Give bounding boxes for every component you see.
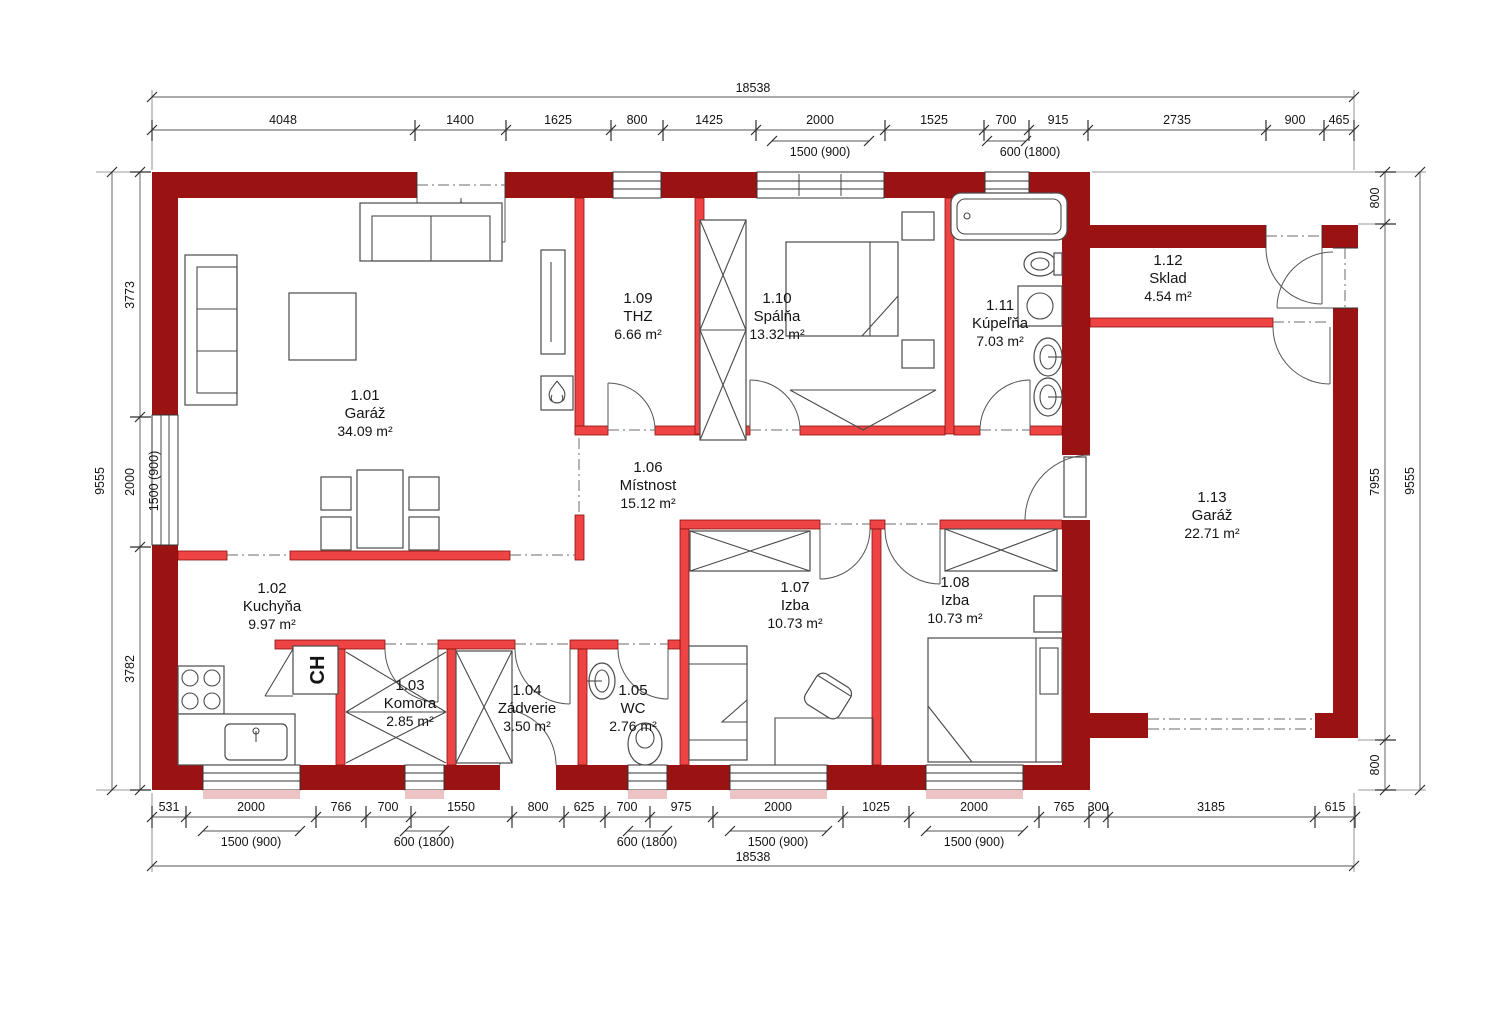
nightstand-1 [902, 212, 934, 240]
wardrobe-spalna [700, 220, 746, 440]
svg-text:6.66 m²: 6.66 m² [614, 326, 662, 342]
svg-text:22.71 m²: 22.71 m² [1184, 525, 1240, 541]
svg-text:1.04: 1.04 [512, 682, 541, 699]
bed-spalna [786, 242, 898, 336]
svg-text:2000: 2000 [764, 800, 792, 814]
svg-text:1.13: 1.13 [1197, 489, 1226, 506]
svg-text:WC: WC [621, 700, 646, 717]
svg-text:700: 700 [378, 800, 399, 814]
floor-plan-drawing: 1.01Garáž34.09 m² 1.02Kuchyňa9.97 m² 1.0… [0, 0, 1501, 1013]
svg-text:600 (1800): 600 (1800) [394, 835, 454, 849]
svg-text:1.09: 1.09 [623, 290, 652, 307]
svg-text:15.12 m²: 15.12 m² [620, 495, 676, 511]
svg-text:10.73 m²: 10.73 m² [927, 610, 983, 626]
svg-text:1550: 1550 [447, 800, 475, 814]
window-izba-107 [730, 765, 827, 790]
room-label-1-13: 1.13Garáž22.71 m² [1184, 489, 1240, 541]
svg-text:1625: 1625 [544, 113, 572, 127]
room-label-1-01: 1.01Garáž34.09 m² [337, 387, 393, 439]
dimension-right: 800 7955 800 9555 [1092, 167, 1426, 795]
svg-text:THZ: THZ [623, 308, 652, 325]
dim-right-total: 9555 [1403, 467, 1417, 495]
svg-text:2.85 m²: 2.85 m² [386, 713, 434, 729]
svg-text:765: 765 [1054, 800, 1075, 814]
floor-plan-canvas: 1.01Garáž34.09 m² 1.02Kuchyňa9.97 m² 1.0… [0, 0, 1501, 1013]
door-spalna [750, 380, 800, 430]
door-sklad-garage [1273, 327, 1330, 384]
furniture-izba-108 [928, 529, 1062, 762]
svg-text:2000: 2000 [960, 800, 988, 814]
svg-text:1.01: 1.01 [350, 387, 379, 404]
office-chair [802, 670, 855, 722]
svg-text:915: 915 [1048, 113, 1069, 127]
coffee-table [289, 293, 356, 360]
svg-text:1.02: 1.02 [257, 580, 286, 597]
room-label-1-05: 1.05WC2.76 m² [609, 682, 657, 734]
room-label-1-08: 1.08Izba10.73 m² [927, 574, 983, 626]
wardrobe-107 [690, 531, 810, 571]
svg-text:2000: 2000 [237, 800, 265, 814]
svg-text:2000: 2000 [123, 468, 137, 496]
svg-text:Garáž: Garáž [1192, 507, 1233, 524]
desk-107 [775, 718, 873, 765]
fridge-label: CH [307, 656, 329, 685]
svg-text:3773: 3773 [123, 281, 137, 309]
dim-top-total: 18538 [736, 81, 771, 95]
svg-text:1500 (900): 1500 (900) [147, 451, 161, 511]
room-label-1-12: 1.12Sklad4.54 m² [1144, 252, 1192, 304]
svg-text:700: 700 [996, 113, 1017, 127]
fireplace-icon [541, 376, 573, 410]
svg-text:Místnost: Místnost [620, 477, 678, 494]
dim-bottom-total: 18538 [736, 850, 771, 864]
bed-107 [689, 646, 747, 760]
svg-text:1.11: 1.11 [986, 297, 1014, 314]
svg-text:2.76 m²: 2.76 m² [609, 718, 657, 734]
svg-text:465: 465 [1329, 113, 1350, 127]
svg-text:Komora: Komora [384, 695, 437, 712]
door-thz [608, 383, 655, 430]
svg-text:1.03: 1.03 [395, 677, 424, 694]
svg-text:1.08: 1.08 [940, 574, 969, 591]
nightstand-2 [902, 340, 934, 368]
svg-text:800: 800 [1368, 755, 1382, 776]
svg-text:13.32 m²: 13.32 m² [749, 326, 805, 342]
svg-text:800: 800 [627, 113, 648, 127]
svg-text:Sklad: Sklad [1149, 270, 1187, 287]
sink-wc [587, 663, 615, 699]
svg-text:800: 800 [1368, 188, 1382, 209]
window-thz [613, 172, 661, 198]
window-spalna [757, 172, 884, 198]
bed-108 [928, 638, 1062, 762]
furniture-izba-107 [689, 531, 873, 765]
svg-text:3185: 3185 [1197, 800, 1225, 814]
dim-left-total: 9555 [93, 467, 107, 495]
door-leaf-garage-passage [1064, 457, 1086, 517]
svg-text:1500 (900): 1500 (900) [221, 835, 281, 849]
svg-text:1500 (900): 1500 (900) [944, 835, 1004, 849]
svg-text:Izba: Izba [781, 597, 810, 614]
room-label-1-02: 1.02Kuchyňa9.97 m² [243, 580, 302, 632]
svg-text:7.03 m²: 7.03 m² [976, 333, 1024, 349]
svg-text:3.50 m²: 3.50 m² [503, 718, 551, 734]
svg-text:1525: 1525 [920, 113, 948, 127]
dimension-bottom: 531 2000 766 700 1550 800 625 700 975 20… [147, 793, 1360, 872]
svg-text:900: 900 [1285, 113, 1306, 127]
stove [178, 666, 224, 714]
svg-text:766: 766 [331, 800, 352, 814]
room-label-1-09: 1.09THZ6.66 m² [614, 290, 662, 342]
dimension-left: 9555 3773 2000 3782 1500 (900) [93, 167, 161, 795]
window-komora [405, 765, 444, 790]
kitchen-counter [178, 714, 295, 765]
svg-text:1.07: 1.07 [780, 579, 809, 596]
sink-2 [1034, 378, 1062, 416]
svg-text:600 (1800): 600 (1800) [1000, 145, 1060, 159]
svg-text:2735: 2735 [1163, 113, 1191, 127]
svg-text:1500 (900): 1500 (900) [748, 835, 808, 849]
svg-text:1.05: 1.05 [618, 682, 647, 699]
svg-text:1500 (900): 1500 (900) [790, 145, 850, 159]
svg-text:615: 615 [1325, 800, 1346, 814]
rug-spalna [790, 390, 936, 430]
toilet-kupelna [1024, 252, 1062, 276]
door-izba-108 [885, 529, 940, 584]
wardrobe-108 [945, 529, 1057, 571]
tv [541, 250, 565, 354]
svg-text:600 (1800): 600 (1800) [617, 835, 677, 849]
svg-text:1025: 1025 [862, 800, 890, 814]
svg-text:7955: 7955 [1368, 468, 1382, 496]
window-izba-108 [926, 765, 1023, 790]
door-garage-east [1277, 252, 1333, 308]
svg-text:800: 800 [528, 800, 549, 814]
svg-text:531: 531 [159, 800, 180, 814]
svg-text:1.10: 1.10 [762, 290, 791, 307]
svg-text:1425: 1425 [695, 113, 723, 127]
svg-text:975: 975 [671, 800, 692, 814]
door-izba-107 [820, 529, 870, 579]
svg-text:1.06: 1.06 [633, 459, 662, 476]
svg-text:2000: 2000 [806, 113, 834, 127]
garage-door-mark [1148, 719, 1315, 729]
door-sklad-north [1266, 248, 1322, 304]
svg-text:4048: 4048 [269, 113, 297, 127]
window-kuchyna [203, 765, 300, 790]
svg-text:Garáž: Garáž [345, 405, 386, 422]
sink-1 [1034, 338, 1062, 376]
dimension-top: 18538 4048 1400 1625 800 1425 2000 1525 … [147, 81, 1359, 170]
window-wc [628, 765, 667, 790]
nightstand-108 [1034, 596, 1062, 632]
sofa-left [185, 255, 237, 405]
dining-set [321, 470, 439, 550]
svg-text:625: 625 [574, 800, 595, 814]
svg-text:700: 700 [617, 800, 638, 814]
svg-text:34.09 m²: 34.09 m² [337, 423, 393, 439]
room-label-1-06: 1.06Místnost15.12 m² [620, 459, 678, 511]
door-kupelna [980, 380, 1030, 430]
bathtub [951, 193, 1067, 240]
svg-text:300: 300 [1088, 800, 1109, 814]
svg-text:9.97 m²: 9.97 m² [248, 616, 296, 632]
room-label-1-07: 1.07Izba10.73 m² [767, 579, 823, 631]
sofa-top [360, 203, 502, 261]
svg-text:3782: 3782 [123, 655, 137, 683]
svg-text:Spálňa: Spálňa [754, 308, 801, 325]
furniture-living [185, 203, 573, 550]
svg-text:4.54 m²: 4.54 m² [1144, 288, 1192, 304]
svg-text:Izba: Izba [941, 592, 970, 609]
furniture-spalna [700, 212, 936, 440]
svg-text:Kuchyňa: Kuchyňa [243, 598, 302, 615]
svg-text:Zádverie: Zádverie [498, 700, 556, 717]
svg-text:1.12: 1.12 [1153, 252, 1182, 269]
svg-text:10.73 m²: 10.73 m² [767, 615, 823, 631]
svg-text:Kúpeľňa: Kúpeľňa [972, 315, 1029, 332]
svg-text:1400: 1400 [446, 113, 474, 127]
